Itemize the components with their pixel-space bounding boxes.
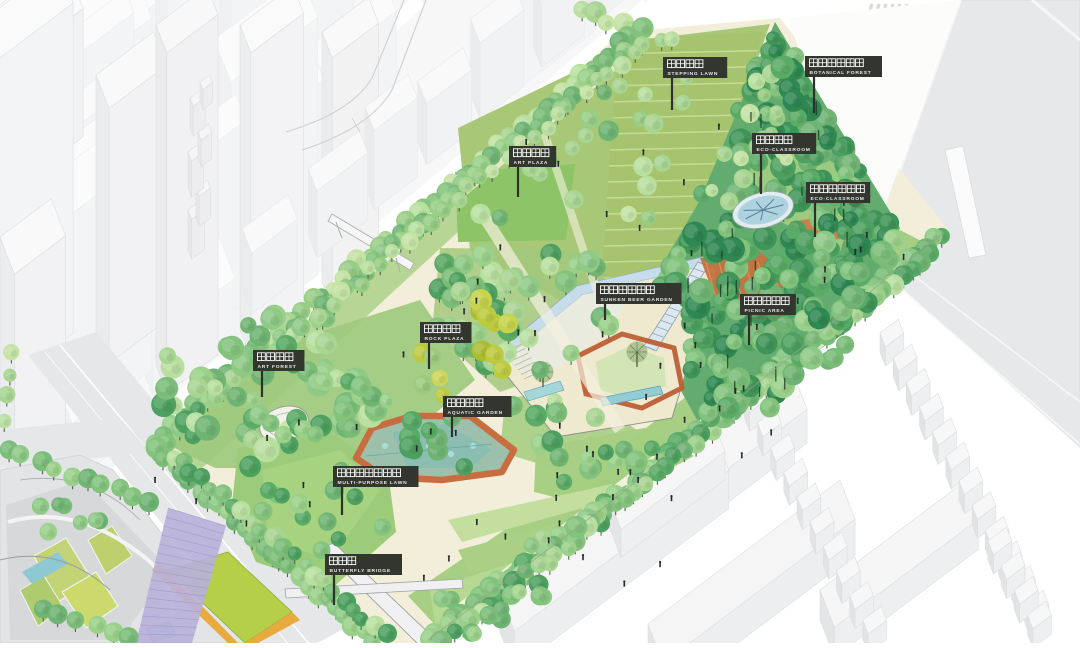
svg-text:MULTI-PURPOSE LAWN: MULTI-PURPOSE LAWN xyxy=(338,480,408,486)
svg-text:ECO-CLASSROOM: ECO-CLASSROOM xyxy=(811,196,865,202)
svg-text:ROCK PLAZA: ROCK PLAZA xyxy=(425,336,465,342)
svg-text:ART FOREST: ART FOREST xyxy=(258,364,297,370)
svg-text:SUNKEN BEER GARDEN: SUNKEN BEER GARDEN xyxy=(601,297,673,303)
svg-text:ECO-CLASSROOM: ECO-CLASSROOM xyxy=(757,147,811,153)
svg-text:ART PLAZA: ART PLAZA xyxy=(514,160,549,166)
svg-text:STEPPING LAWN: STEPPING LAWN xyxy=(668,71,719,77)
svg-text:PICNIC AREA: PICNIC AREA xyxy=(745,308,785,314)
svg-text:AQUATIC GARDEN: AQUATIC GARDEN xyxy=(448,410,503,416)
svg-text:BUTTERFLY BRIDGE: BUTTERFLY BRIDGE xyxy=(330,568,391,574)
svg-text:BOTANICAL FOREST: BOTANICAL FOREST xyxy=(810,70,872,76)
